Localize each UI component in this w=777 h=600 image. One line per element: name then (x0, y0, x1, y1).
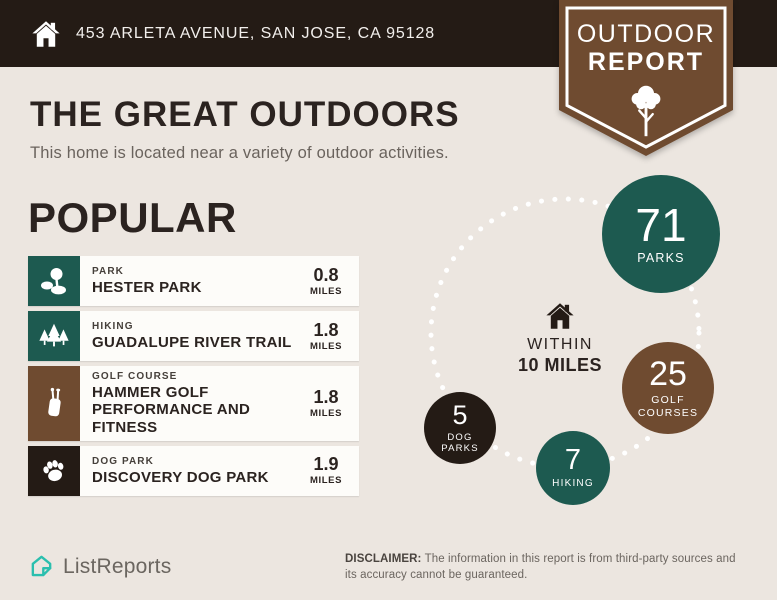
item-category: DOG PARK (92, 456, 293, 467)
badge-title-line2: REPORT (559, 48, 733, 77)
list-item-dog-park: DOG PARK DISCOVERY DOG PARK 1.9 MILES (28, 446, 359, 496)
item-distance: 0.8 (313, 266, 338, 284)
listreports-house-icon (28, 553, 55, 580)
popular-list: PARK HESTER PARK 0.8 MILES (28, 256, 359, 496)
item-distance-unit: MILES (310, 475, 342, 486)
stat-bubble-golf-courses: 25 GOLF COURSES (622, 342, 714, 434)
house-icon (30, 18, 62, 50)
item-distance: 1.9 (313, 455, 338, 473)
golf-icon (28, 366, 80, 441)
badge-title-line1: OUTDOOR (559, 20, 733, 49)
stat-label: GOLF COURSES (636, 394, 700, 419)
item-category: PARK (92, 266, 293, 277)
page-subtitle: This home is located near a variety of o… (30, 144, 449, 163)
stat-value: 71 (635, 202, 686, 248)
stat-value: 5 (452, 402, 467, 429)
page-title: THE GREAT OUTDOORS (30, 95, 460, 135)
stat-label: HIKING (552, 478, 594, 490)
list-item-park: PARK HESTER PARK 0.8 MILES (28, 256, 359, 306)
item-distance-unit: MILES (310, 341, 342, 352)
house-icon (544, 300, 576, 332)
park-icon (28, 256, 80, 306)
item-distance-unit: MILES (310, 408, 342, 419)
item-category: GOLF COURSE (92, 371, 293, 382)
stat-label: DOG PARKS (437, 432, 483, 455)
within-distance: 10 MILES (498, 355, 622, 376)
list-item-golf: GOLF COURSE HAMMER GOLF PERFORMANCE AND … (28, 366, 359, 441)
stat-bubble-hiking: 7 HIKING (536, 431, 610, 505)
item-name: DISCOVERY DOG PARK (92, 469, 293, 486)
list-item-hiking: HIKING GUADALUPE RIVER TRAIL 1.8 MILES (28, 311, 359, 361)
item-distance: 1.8 (313, 321, 338, 339)
item-distance-unit: MILES (310, 286, 342, 297)
item-name: HESTER PARK (92, 279, 293, 296)
stat-bubble-parks: 71 PARKS (602, 175, 720, 293)
stat-value: 25 (649, 357, 687, 391)
radius-center: WITHIN 10 MILES (498, 300, 622, 376)
property-address: 453 ARLETA AVENUE, SAN JOSE, CA 95128 (76, 25, 435, 43)
stat-value: 7 (565, 446, 581, 475)
outdoor-report-page: 453 ARLETA AVENUE, SAN JOSE, CA 95128 OU… (0, 0, 777, 600)
brand-name: ListReports (63, 555, 171, 579)
hiking-icon (28, 311, 80, 361)
outdoor-report-badge: OUTDOOR REPORT (559, 0, 733, 158)
listreports-logo: ListReports (28, 553, 171, 580)
tree-icon (624, 84, 668, 138)
popular-heading: POPULAR (28, 194, 237, 242)
stat-bubble-dog-parks: 5 DOG PARKS (424, 392, 496, 464)
item-distance: 1.8 (313, 388, 338, 406)
item-name: HAMMER GOLF PERFORMANCE AND FITNESS (92, 384, 293, 436)
item-name: GUADALUPE RIVER TRAIL (92, 334, 293, 351)
disclaimer: DISCLAIMER: The information in this repo… (345, 551, 743, 583)
stat-label: PARKS (637, 251, 684, 266)
within-label: WITHIN (498, 336, 622, 354)
paw-icon (28, 446, 80, 496)
item-category: HIKING (92, 321, 293, 332)
disclaimer-label: DISCLAIMER: (345, 553, 422, 565)
